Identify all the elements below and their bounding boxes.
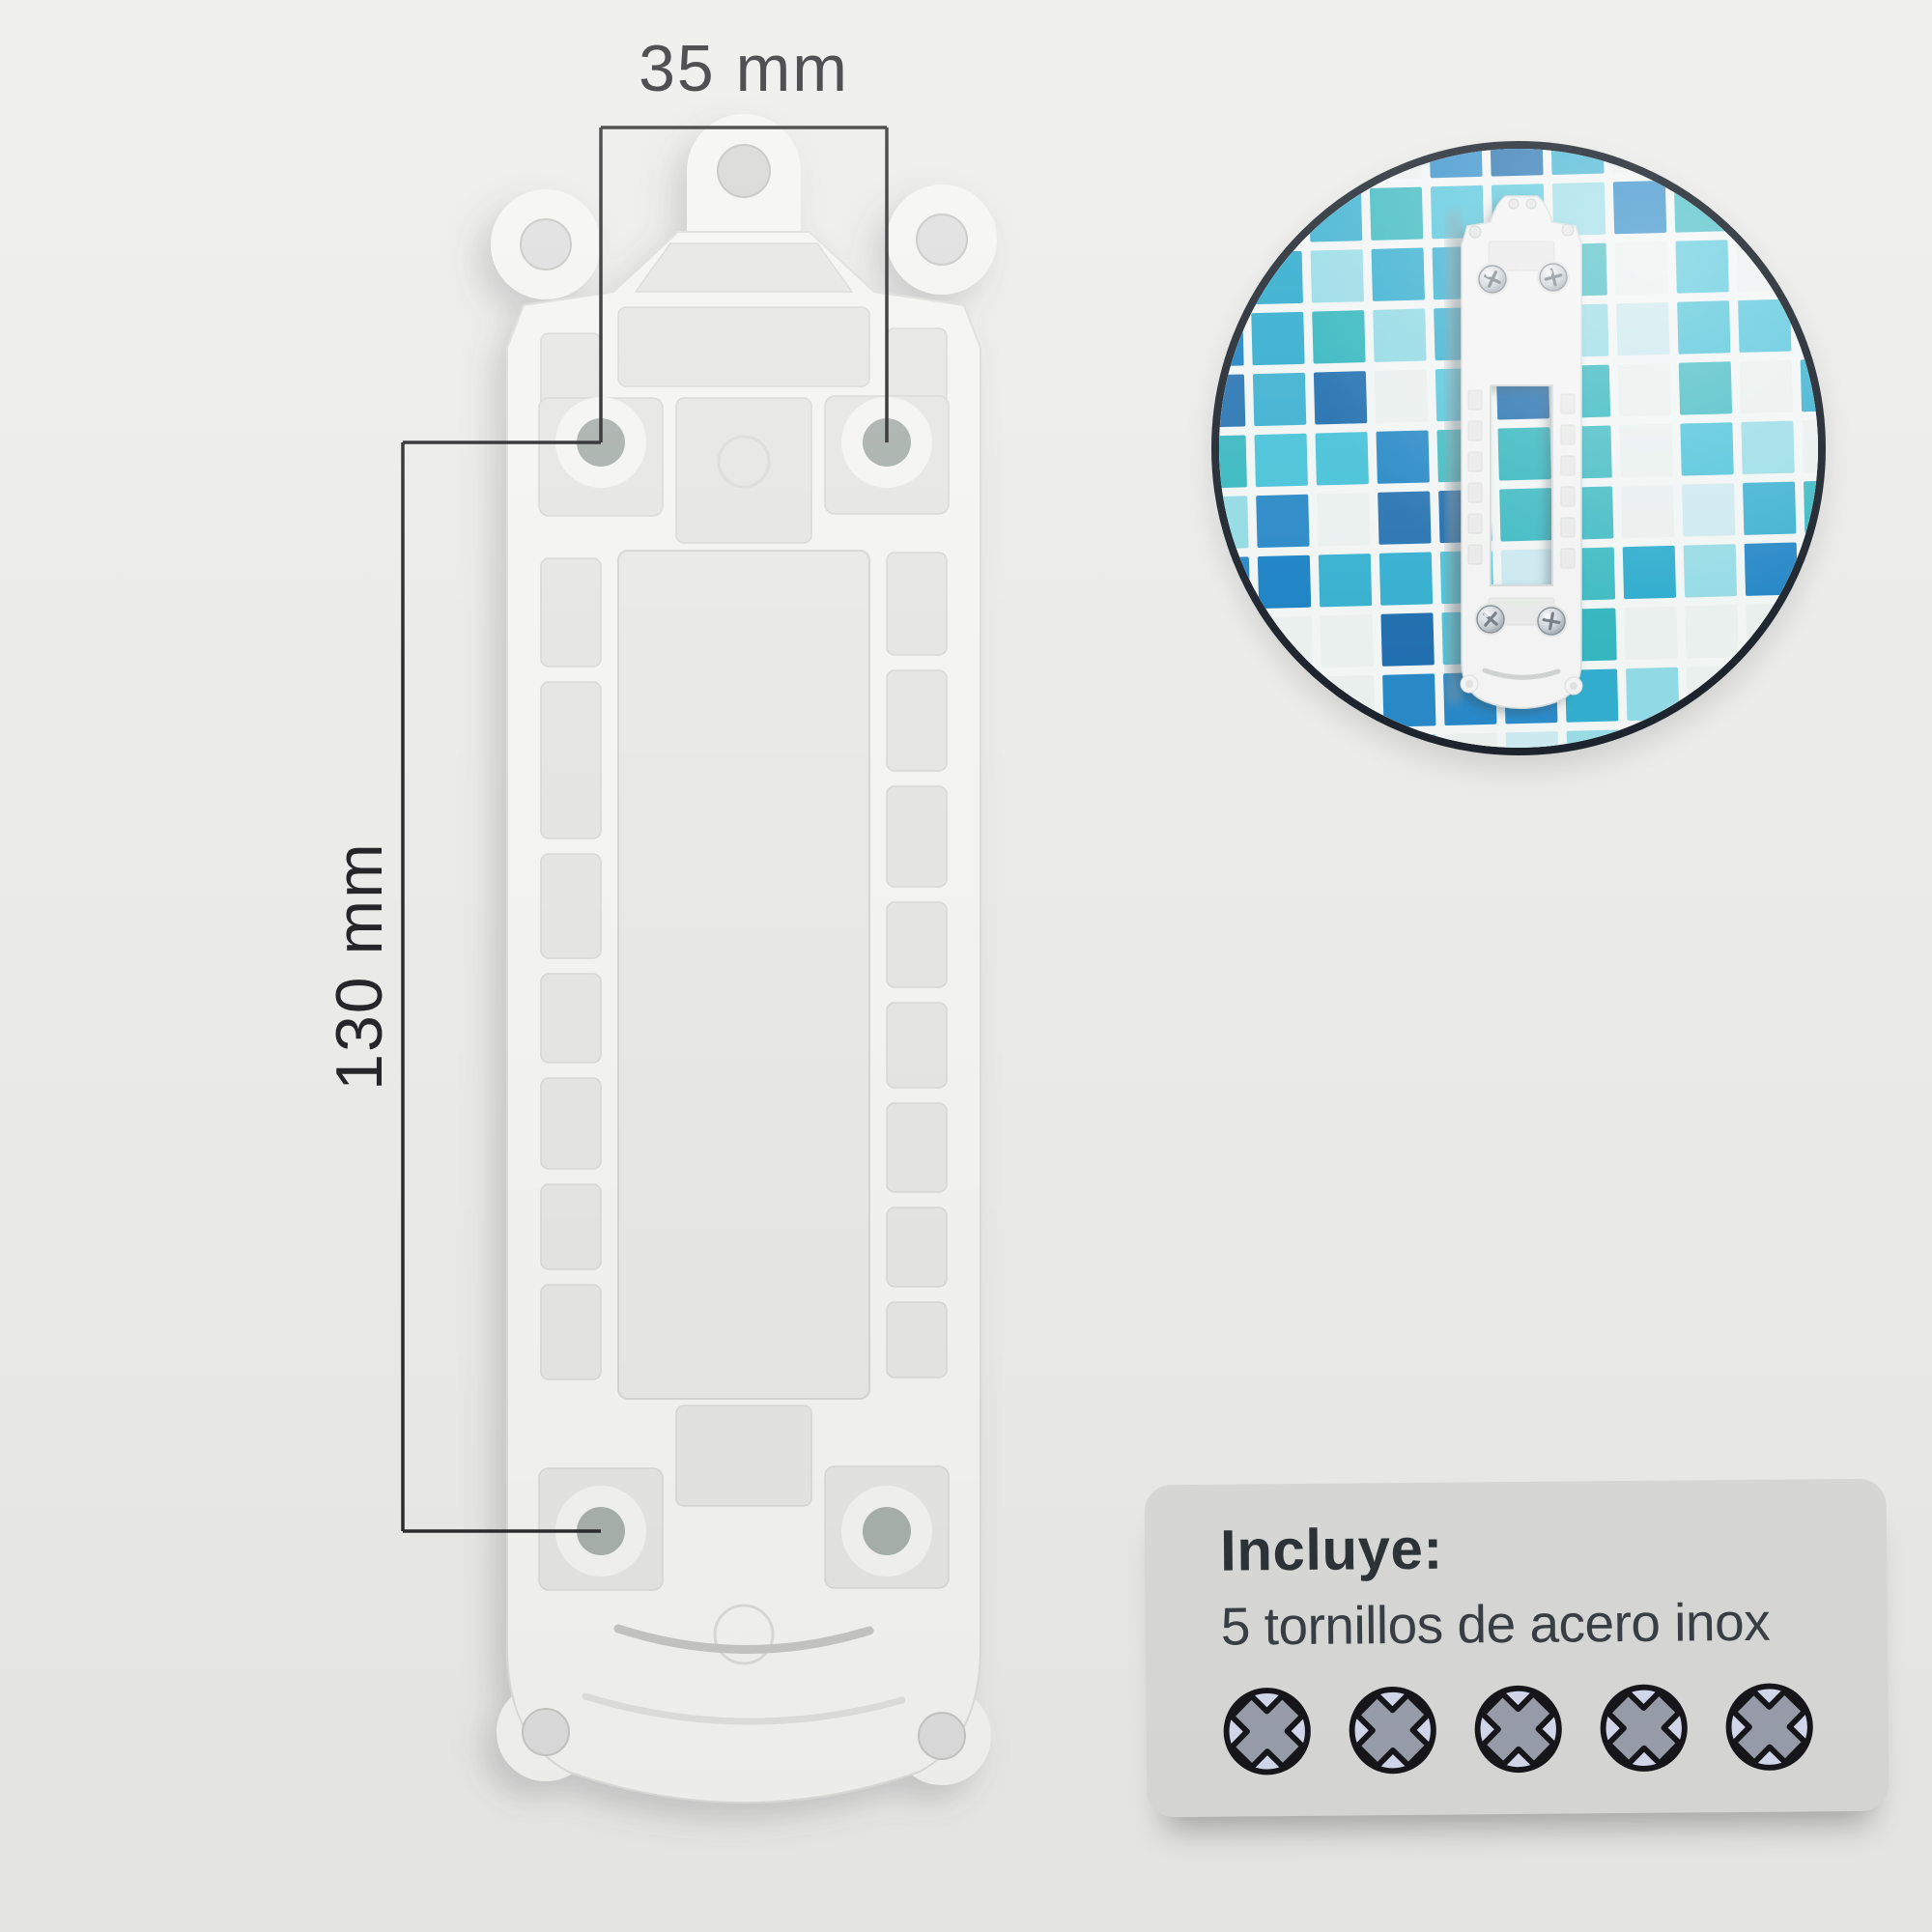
includes-title: Incluye: (1220, 1512, 1888, 1584)
screw-icon (1470, 1682, 1566, 1777)
plate-body (491, 114, 997, 1803)
installation-inset (1211, 141, 1826, 755)
screw-icon (1721, 1679, 1817, 1775)
screw-head (1477, 606, 1504, 633)
dimension-height-label: 130 mm (322, 758, 399, 1174)
screw-icon (1219, 1684, 1315, 1779)
screw-head (1540, 264, 1567, 291)
screw-icons-row (1219, 1679, 1889, 1779)
screw-icon (1596, 1680, 1691, 1776)
includes-subtitle: 5 tornillos de acero inox (1221, 1590, 1889, 1658)
product-infographic: 35 mm 130 mm (0, 0, 1932, 1932)
screw-head (1538, 608, 1565, 635)
screw-head (1479, 266, 1506, 293)
mounted-plate-photo (1435, 187, 1589, 719)
screw-icon (1345, 1683, 1440, 1778)
dimension-width-label: 35 mm (551, 31, 937, 106)
includes-card: Incluye: 5 tornillos de acero inox (1145, 1479, 1889, 1818)
mounted-plate-window-frame (1491, 385, 1552, 585)
central-window (618, 551, 869, 1399)
wall-shadow (1446, 212, 1462, 704)
